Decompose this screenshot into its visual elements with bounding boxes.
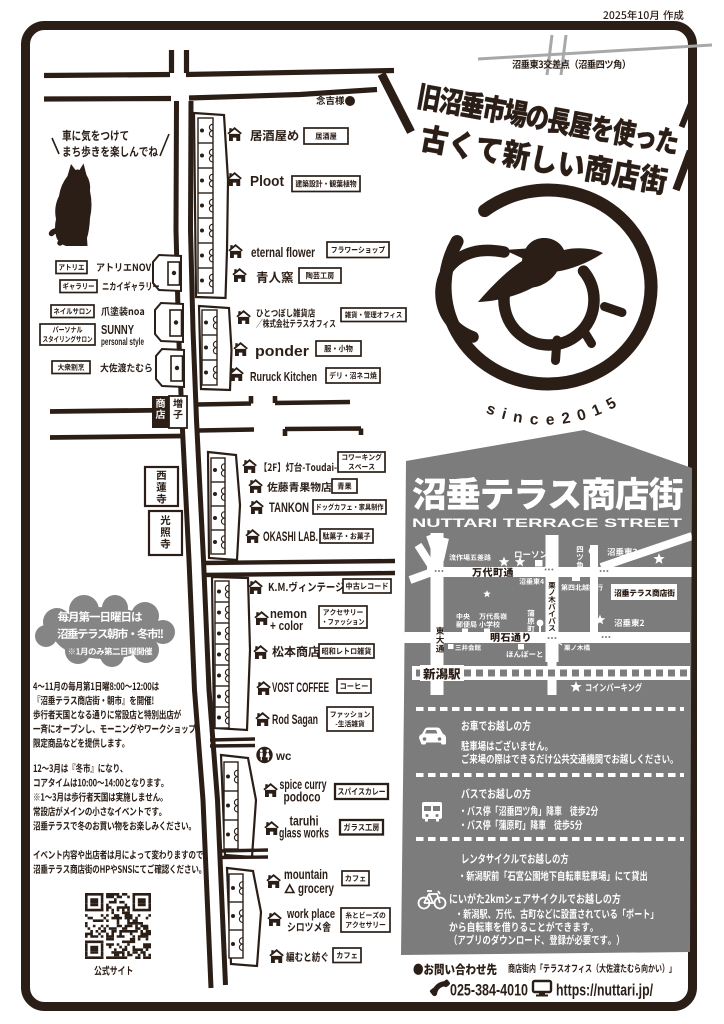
svg-text:work place: work place bbox=[286, 906, 335, 921]
svg-text:podoco: podoco bbox=[284, 790, 321, 805]
svg-text:mountain: mountain bbox=[284, 867, 328, 882]
svg-text:SUNNY: SUNNY bbox=[101, 322, 134, 337]
svg-text:+ color: + color bbox=[270, 619, 303, 633]
svg-text:Rod Sagan: Rod Sagan bbox=[272, 712, 318, 727]
svg-text:Ploot: Ploot bbox=[250, 173, 284, 190]
svg-text:TANKON: TANKON bbox=[269, 500, 309, 515]
svg-text:ponder: ponder bbox=[255, 343, 309, 360]
svg-text:Ruruck Kitchen: Ruruck Kitchen bbox=[250, 369, 317, 384]
svg-text:NUTTARI TERRACE STREET: NUTTARI TERRACE STREET bbox=[412, 518, 682, 530]
svg-text:OKASHI LAB.: OKASHI LAB. bbox=[263, 529, 318, 544]
svg-text:wc: wc bbox=[275, 751, 292, 763]
svg-text:grocery: grocery bbox=[298, 881, 334, 896]
svg-text:glass works: glass works bbox=[279, 826, 329, 841]
svg-text:eternal flower: eternal flower bbox=[251, 245, 316, 260]
svg-text:025-384-4010: 025-384-4010 bbox=[450, 981, 528, 1000]
svg-text:https://nuttari.jp/: https://nuttari.jp/ bbox=[556, 982, 653, 1000]
svg-text:VOST COFFEE: VOST COFFEE bbox=[272, 680, 329, 695]
svg-text:personal style: personal style bbox=[101, 336, 144, 348]
